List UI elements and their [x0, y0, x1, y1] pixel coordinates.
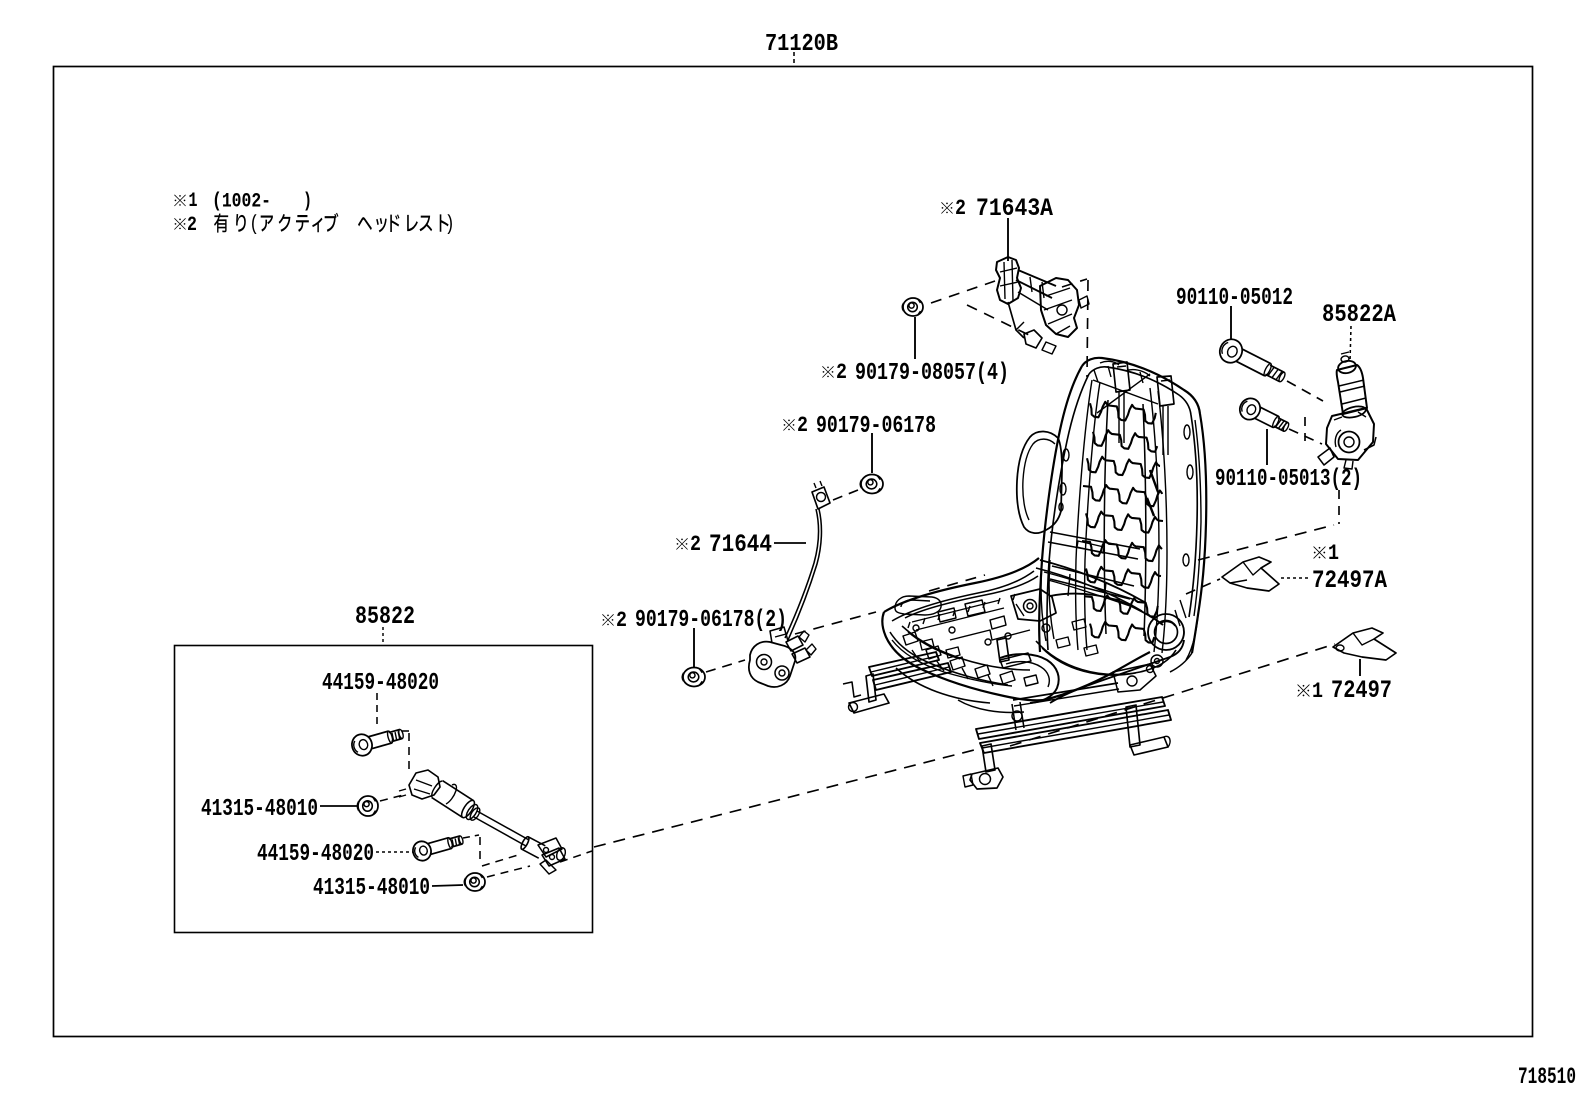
svg-text:72497: 72497 [1331, 676, 1392, 705]
svg-text:85822A: 85822A [1322, 300, 1396, 329]
svg-text:2: 2 [690, 532, 701, 557]
svg-text:44159-48020: 44159-48020 [322, 670, 439, 697]
svg-text:2: 2 [797, 413, 808, 438]
svg-text:): ) [303, 191, 312, 214]
svg-text:2: 2 [187, 214, 197, 237]
svg-text:1: 1 [1312, 679, 1323, 704]
svg-text:1: 1 [1328, 541, 1339, 566]
svg-text:90110-05013(2): 90110-05013(2) [1215, 466, 1362, 493]
svg-text:41315-48010: 41315-48010 [313, 875, 430, 902]
svg-text:90179-06178: 90179-06178 [816, 413, 936, 440]
svg-text:44159-48020: 44159-48020 [257, 841, 374, 868]
svg-text:1: 1 [189, 190, 198, 213]
svg-text:85822: 85822 [355, 602, 415, 631]
svg-text:71644: 71644 [709, 530, 772, 559]
svg-text:71643A: 71643A [976, 194, 1053, 223]
svg-text:2: 2 [616, 608, 627, 633]
svg-text:(1002-: (1002- [212, 191, 271, 214]
svg-text:2: 2 [955, 196, 966, 221]
svg-text:718510: 718510 [1518, 1064, 1576, 1090]
svg-text:90110-05012: 90110-05012 [1176, 285, 1293, 312]
svg-text:71120B: 71120B [765, 31, 838, 58]
svg-text:2: 2 [836, 360, 847, 385]
svg-text:90179-06178(2): 90179-06178(2) [635, 607, 787, 634]
svg-text:72497A: 72497A [1312, 566, 1387, 595]
svg-text:41315-48010: 41315-48010 [201, 796, 318, 823]
svg-text:90179-08057(4): 90179-08057(4) [855, 360, 1009, 387]
